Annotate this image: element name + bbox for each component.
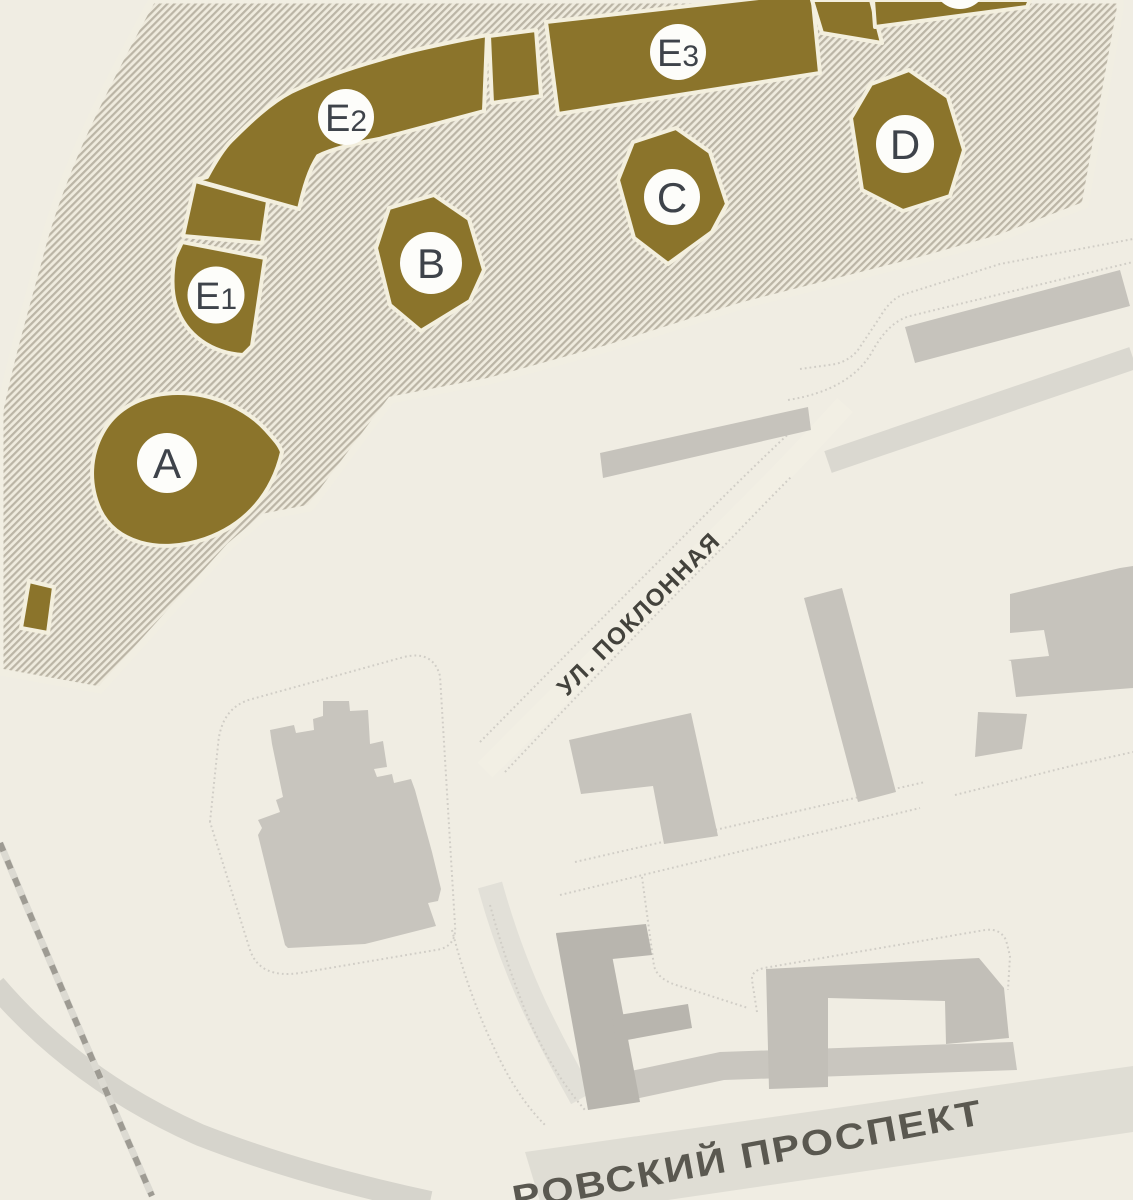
svg-text:E3: E3 (657, 33, 699, 75)
svg-text:C: C (657, 174, 687, 221)
svg-text:B: B (417, 240, 445, 287)
svg-text:D: D (890, 121, 920, 168)
svg-text:E2: E2 (325, 98, 367, 140)
svg-text:A: A (153, 440, 181, 487)
svg-text:E1: E1 (195, 276, 237, 318)
